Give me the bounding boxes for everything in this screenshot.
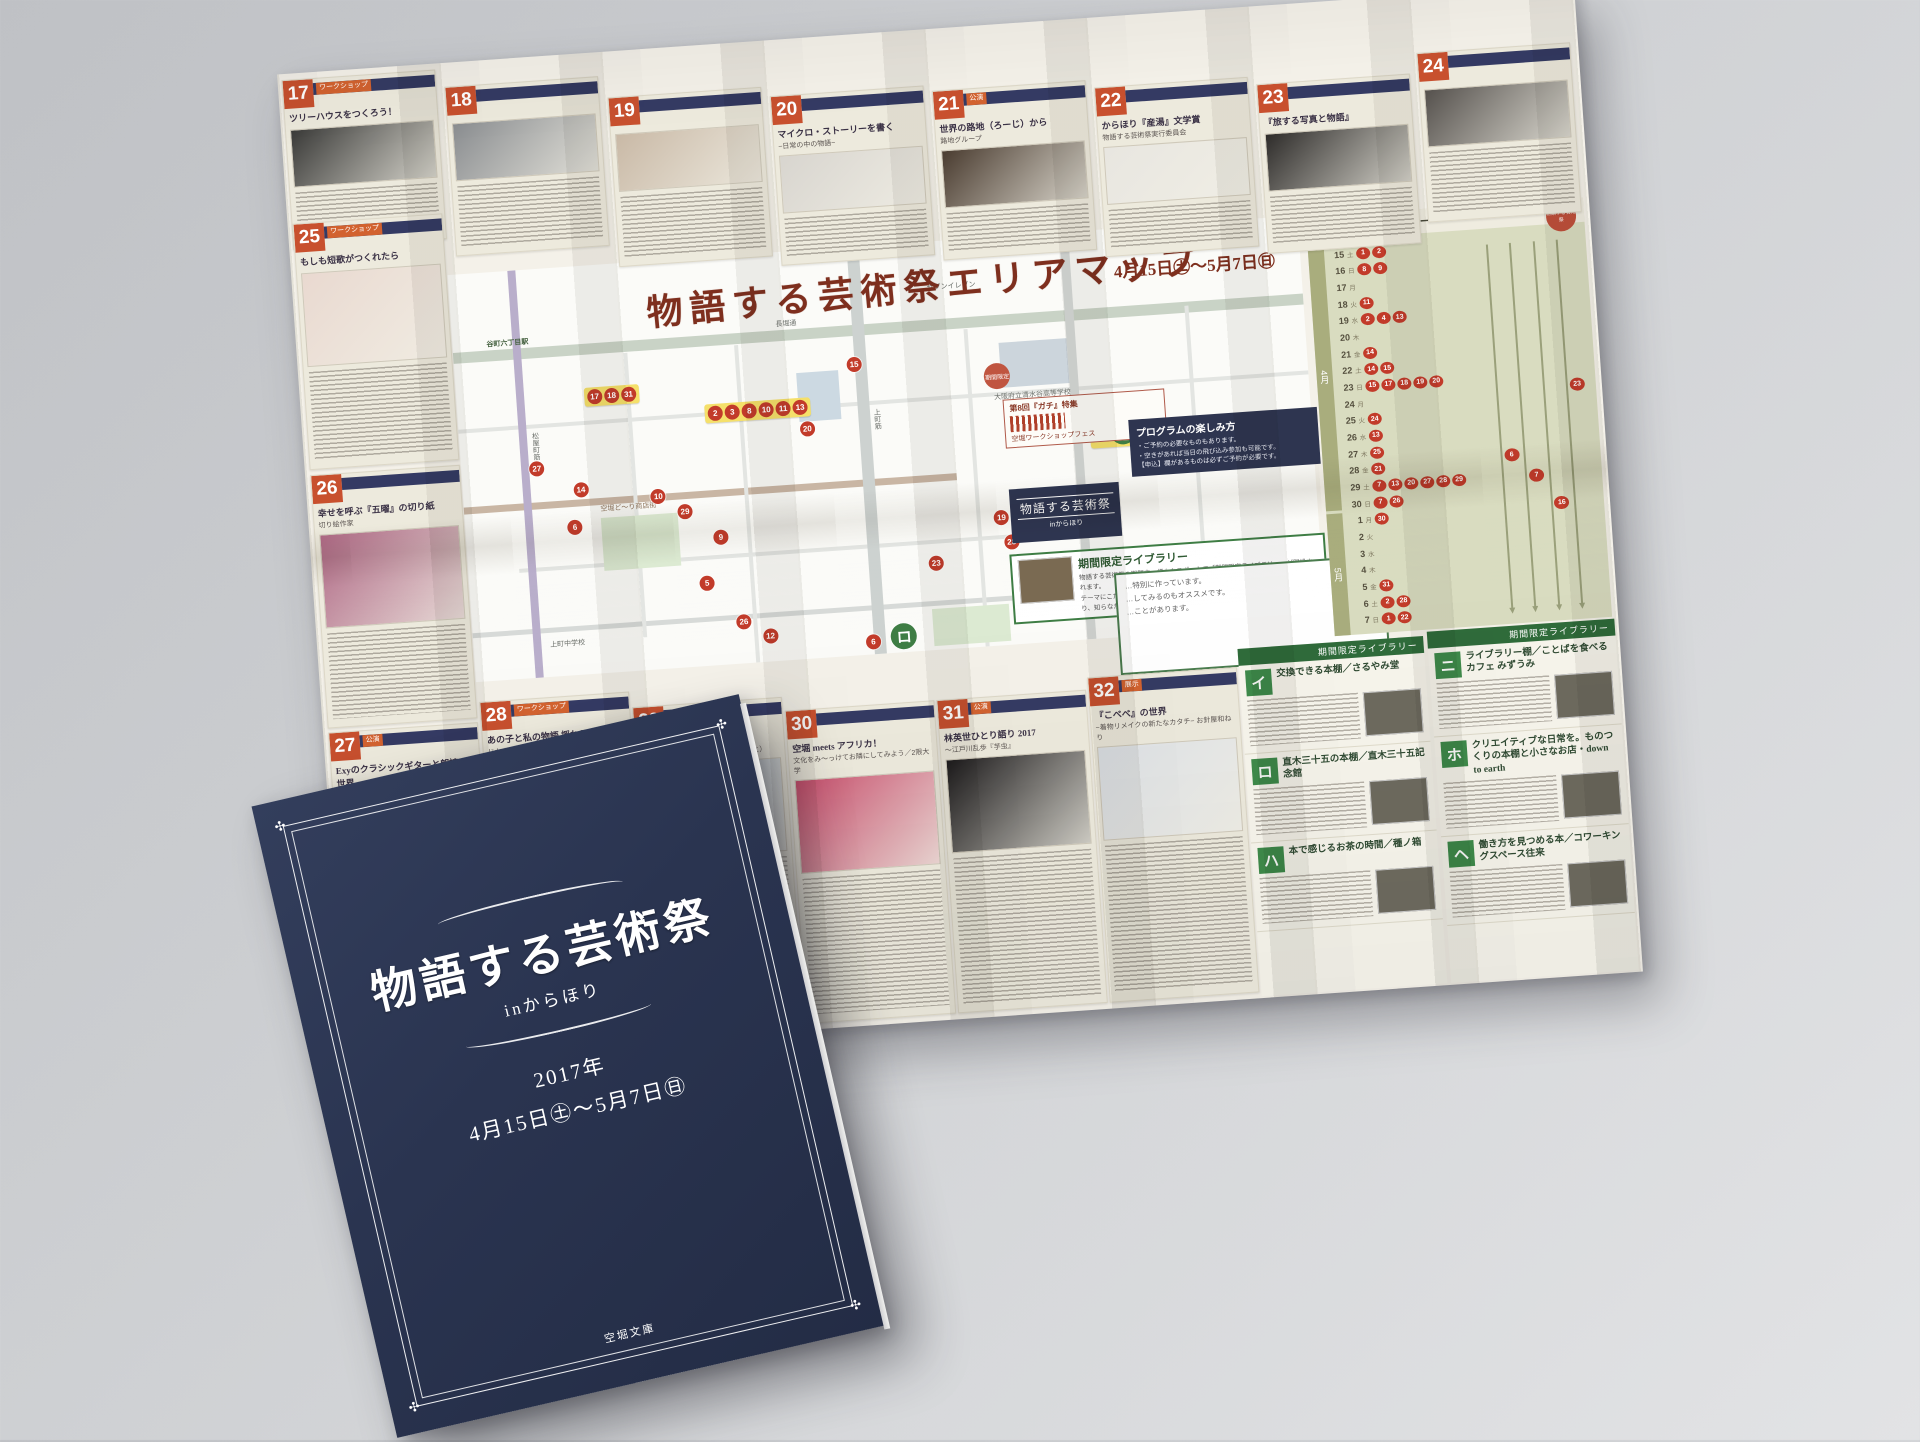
calendar-event-badge: 31 xyxy=(1379,579,1394,592)
calendar-weekday: 火 xyxy=(1347,298,1360,309)
entry-photo xyxy=(319,525,465,629)
calendar-day: 28 xyxy=(1343,465,1360,476)
entry-title-bar: 展示 xyxy=(1118,672,1237,692)
library-item-photo xyxy=(1375,866,1436,914)
library-box-photo xyxy=(1018,557,1075,605)
calendar-event-badge: 4 xyxy=(1376,312,1391,325)
calendar-event-badge: 2 xyxy=(1360,313,1375,326)
entry-photo xyxy=(452,113,600,181)
calendar-day: 23 xyxy=(1337,382,1354,393)
entry-photo xyxy=(941,140,1089,208)
map-marker-group: 238101113 xyxy=(704,397,811,423)
library-item: ニライブラリー棚／ことばを食べるカフェ みずうみ xyxy=(1428,636,1622,738)
map-number-marker: 13 xyxy=(792,399,808,415)
calendar-event-badge: 8 xyxy=(1357,263,1372,276)
calendar-event-badge: 2 xyxy=(1380,596,1395,609)
calendar-day: 5 xyxy=(1351,582,1368,593)
calendar-day: 18 xyxy=(1331,299,1348,310)
calendar-day: 17 xyxy=(1330,282,1347,293)
calendar-day: 2 xyxy=(1348,532,1365,543)
library-item-text-lines xyxy=(1253,781,1367,835)
calendar-weekday: 日 xyxy=(1369,614,1382,625)
entry-category-tag: 展示 xyxy=(1121,679,1142,692)
map-number-marker: 23 xyxy=(928,555,944,571)
corner-ornament-icon: ✣ xyxy=(273,818,287,836)
entry-card-23: 23『旅する写真と物語』 xyxy=(1256,74,1421,254)
entry-photo xyxy=(301,264,447,368)
entry-number: 31 xyxy=(937,699,969,729)
library-item: ハ本で感じるお茶の時間／種ノ箱 xyxy=(1251,831,1443,933)
calendar-event-badge: 26 xyxy=(1389,495,1404,508)
entry-category-tag: 公演 xyxy=(971,701,992,714)
library-item-photo xyxy=(1369,777,1430,825)
library-item: ヘ働き方を見つめる本／コワーキングスペース往来 xyxy=(1441,824,1635,926)
entry-card-26: 26幸せを呼ぶ『五曜』の切り紙切り絵作家 xyxy=(310,465,477,729)
calendar-event-badge: 22 xyxy=(1397,611,1412,624)
entry-text-lines xyxy=(802,869,949,1014)
map-number-marker: 9 xyxy=(713,530,729,546)
calendar-weekday: 土 xyxy=(1368,597,1381,608)
calendar-weekday: 水 xyxy=(1348,315,1361,326)
entry-title-bar: ワークショップ xyxy=(324,218,443,238)
map-number-marker: 10 xyxy=(758,402,774,418)
map-number-marker: 27 xyxy=(529,461,545,477)
calendar-event-badge: 30 xyxy=(1374,512,1389,525)
calendar-day: 15 xyxy=(1328,249,1345,260)
library-kana-badge: ハ xyxy=(1257,846,1285,874)
library-item-text-lines xyxy=(1259,870,1373,924)
map-number-marker: 31 xyxy=(621,387,637,403)
map-number-marker: 12 xyxy=(763,628,779,644)
calendar-weekday: 土 xyxy=(1360,481,1373,492)
calendar-weekday: 水 xyxy=(1357,431,1370,442)
entry-text-lines xyxy=(784,209,928,257)
calendar-event-badge: 20 xyxy=(1404,477,1419,490)
entry-title-bar xyxy=(816,705,935,725)
entry-title-bar xyxy=(1287,79,1410,99)
library-item-photo xyxy=(1554,671,1615,719)
calendar-event-badge: 17 xyxy=(1381,378,1396,391)
entry-number: 27 xyxy=(329,731,361,761)
entry-title-bar: ワークショップ xyxy=(313,75,436,95)
library-kana-badge: ホ xyxy=(1440,740,1468,768)
festival-logo-sub: inからほり xyxy=(1050,518,1084,530)
calendar-weekday: 木 xyxy=(1358,448,1371,459)
entry-number: 21 xyxy=(933,90,965,120)
calendar-day: 22 xyxy=(1336,365,1353,376)
map-number-marker: 19 xyxy=(993,510,1009,526)
calendar-weekday: 月 xyxy=(1354,398,1367,409)
label-matsuya: 松屋町筋 xyxy=(529,432,541,461)
entry-title-bar: 公演 xyxy=(963,85,1086,105)
calendar-day: 27 xyxy=(1342,449,1359,460)
entry-photo xyxy=(945,750,1091,854)
entry-category-tag: 公演 xyxy=(966,92,987,105)
calendar-event-badge: 24 xyxy=(1367,413,1382,426)
library-item-text-lines xyxy=(1443,775,1559,829)
library-column-2: 期間限定ライブラリーニライブラリー棚／ことばを食べるカフェ みずうみホクリエイテ… xyxy=(1427,619,1639,983)
calendar-weekday: 金 xyxy=(1351,348,1364,359)
entry-category-tag: ワークショップ xyxy=(316,79,372,95)
entry-number: 26 xyxy=(311,474,343,504)
entry-card-21: 21公演世界の路地（ろーじ）から路地グループ xyxy=(932,80,1097,260)
entry-text-lines xyxy=(953,849,1101,1004)
calendar-event-badge: 7 xyxy=(1372,479,1387,492)
map-number-marker: 8 xyxy=(741,403,757,419)
map-number-marker: 20 xyxy=(799,421,815,437)
entry-title-bar: 公演 xyxy=(968,695,1087,715)
library-item-body xyxy=(1443,771,1622,829)
map-number-marker: 2 xyxy=(707,405,723,421)
map-number-marker: 17 xyxy=(587,389,603,405)
calendar-event-badge: 27 xyxy=(1420,476,1435,489)
entry-text-lines xyxy=(1270,187,1415,245)
entry-title-bar xyxy=(639,92,762,112)
calendar-day: 6 xyxy=(1352,598,1369,609)
entry-photo xyxy=(779,146,927,214)
entry-number: 19 xyxy=(609,96,641,126)
entry-title-bar xyxy=(1125,82,1248,102)
entry-text-lines xyxy=(1109,200,1253,248)
entry-text-lines xyxy=(309,362,453,460)
calendar-day: 24 xyxy=(1338,399,1355,410)
corner-ornament-icon: ✣ xyxy=(715,716,729,734)
entry-photo xyxy=(290,120,438,188)
entry-card-18: 18 xyxy=(444,76,609,256)
map-number-marker: 6 xyxy=(567,519,583,535)
entry-card-31: 31公演林英世ひとり語り 2017〜江戸川乱歩『芋虫』 xyxy=(936,690,1108,1014)
school-block xyxy=(999,338,1070,388)
label-junior-high: 上町中学校 xyxy=(550,638,586,650)
park-block-2 xyxy=(932,604,1011,646)
map-kana-marker: ロ xyxy=(890,623,918,651)
calendar-day: 7 xyxy=(1353,615,1370,626)
library-item-photo xyxy=(1363,688,1424,736)
entry-number: 28 xyxy=(480,701,512,731)
map-number-marker: 14 xyxy=(573,482,589,498)
entry-number: 25 xyxy=(294,223,326,253)
library-item-body xyxy=(1247,688,1424,746)
library-kana-badge: ヘ xyxy=(1447,840,1475,868)
library-item: ホクリエイティブな日常を。ものつくりの本棚と小さなお店・down to eart… xyxy=(1434,724,1629,837)
map-number-marker: 6 xyxy=(865,633,881,649)
library-item-body xyxy=(1436,671,1615,729)
calendar-day: 25 xyxy=(1339,415,1356,426)
street-karahori-shopping xyxy=(464,473,957,514)
festival-logo-box: 物語する芸術祭 inからほり xyxy=(1009,482,1122,544)
calendar-day: 19 xyxy=(1333,316,1350,327)
library-item-title: クリエイティブな日常を。ものつくりの本棚と小さなお店・down to earth xyxy=(1471,730,1618,777)
calendar-weekday: 土 xyxy=(1344,248,1357,259)
library-item-title: ライブラリー棚／ことばを食べるカフェ みずうみ xyxy=(1465,641,1611,676)
entry-text-lines xyxy=(620,187,766,258)
entry-photo xyxy=(1103,137,1251,205)
calendar-day: 1 xyxy=(1346,515,1363,526)
calendar-day: 20 xyxy=(1334,332,1351,343)
library-column-1: 期間限定ライブラリーイ交換できる本棚／さるやみ堂ロ直木三十五の本棚／直木三十五記… xyxy=(1237,636,1447,996)
library-item-body xyxy=(1259,866,1436,924)
calendar-event-badge: 7 xyxy=(1373,496,1388,509)
calendar-event-badge: 21 xyxy=(1371,462,1386,475)
library-kana-badge: イ xyxy=(1245,669,1273,697)
entry-card-30: 30空堀 meets アフリカ！文化をみ〜っけてお隣にしてみよう／2限大学 xyxy=(785,700,957,1024)
calendar-weekday: 木 xyxy=(1350,331,1363,342)
entry-number: 17 xyxy=(283,79,315,109)
workshop-fes-logo xyxy=(1010,413,1066,433)
entry-cards: 17ワークショップツリーハウスをつくろう！181920マイクロ・ストーリーを書く… xyxy=(277,0,1574,75)
map-number-marker: 3 xyxy=(724,404,740,420)
calendar-weekday: 日 xyxy=(1361,498,1374,509)
calendar-event-badge: 9 xyxy=(1373,262,1388,275)
entry-photo xyxy=(615,124,763,192)
label-uemachi: 上町筋 xyxy=(871,408,882,430)
park-block xyxy=(601,513,681,571)
map-number-marker: 29 xyxy=(677,503,693,519)
calendar-weekday: 月 xyxy=(1362,514,1375,525)
calendar-weekday: 日 xyxy=(1353,381,1366,392)
entry-title-bar: 公演 xyxy=(359,727,478,747)
festival-logo-title: 物語する芸術祭 xyxy=(1016,493,1114,521)
calendar-event-badge: 19 xyxy=(1413,376,1428,389)
calendar-weekday: 金 xyxy=(1367,581,1380,592)
calendar-event-badge: 25 xyxy=(1370,446,1385,459)
calendar-day: 26 xyxy=(1341,432,1358,443)
entry-number: 30 xyxy=(786,710,818,740)
calendar-weekday: 火 xyxy=(1364,531,1377,542)
entry-card-19: 19 xyxy=(607,87,772,267)
entry-title-bar xyxy=(801,91,924,111)
library-item-title: 交換できる本棚／さるやみ堂 xyxy=(1276,660,1400,681)
calendar-event-badge: 13 xyxy=(1392,311,1407,324)
entry-title-bar xyxy=(476,81,599,101)
map-number-marker: 18 xyxy=(604,388,620,404)
calendar-weekday: 月 xyxy=(1346,281,1359,292)
calendar-event-badge: 28 xyxy=(1436,475,1451,488)
calendar-weekday: 水 xyxy=(1365,548,1378,559)
calendar-day: 3 xyxy=(1349,548,1366,559)
calendar-day: 30 xyxy=(1345,499,1362,510)
entry-photo xyxy=(1097,737,1243,841)
calendar-day: 21 xyxy=(1335,349,1352,360)
calendar-rows: 15土1216日8917月18火1119水241320木21金1422土1415… xyxy=(1328,230,1606,629)
map-number-marker: 26 xyxy=(736,614,752,630)
entry-card-22: 22からほり『産湯』文学賞物語する芸術祭実行委員会 xyxy=(1094,77,1259,257)
calendar-event-badge: 15 xyxy=(1365,379,1380,392)
calendar-weekday: 日 xyxy=(1345,265,1358,276)
calendar-weekday: 木 xyxy=(1366,564,1379,575)
calendar-event-badge: 14 xyxy=(1363,346,1378,359)
entry-number: 22 xyxy=(1095,86,1127,116)
calendar-event-badge: 13 xyxy=(1369,429,1384,442)
calendar-event-badge: 15 xyxy=(1380,362,1395,375)
entry-text-lines xyxy=(1105,836,1253,993)
library-item-text-lines xyxy=(1450,864,1566,918)
library-item: ロ直木三十五の本棚／直木三十五記念館 xyxy=(1245,742,1437,844)
entry-card-32: 32展示『こべべ』の世界−着物リメイクの新たなカタチ− お針屋和ねり xyxy=(1087,667,1259,1003)
calendar-event-badge: 14 xyxy=(1364,363,1379,376)
map-number-marker: 5 xyxy=(699,576,715,592)
library-kana-badge: ニ xyxy=(1434,651,1462,679)
entry-title-bar xyxy=(1448,47,1571,67)
entry-title-bar: ワークショップ xyxy=(511,697,630,717)
photo-scene: { "sheet": { "title": "物語する芸術祭エリアマップ", "… xyxy=(0,0,1920,1440)
entry-category-tag: ワークショップ xyxy=(514,701,570,717)
map-number-marker: 10 xyxy=(650,489,666,505)
calendar-weekday: 土 xyxy=(1352,365,1365,376)
entry-number: 18 xyxy=(445,86,477,116)
entry-photo xyxy=(795,770,941,874)
calendar-event-badge: 29 xyxy=(1452,474,1467,487)
library-kana-badge: ロ xyxy=(1251,757,1279,785)
entry-text-lines xyxy=(946,203,1090,251)
library-item-title: 本で感じるお茶の時間／種ノ箱 xyxy=(1288,837,1422,859)
entry-card-25: 25ワークショップもしも短歌がつくれたら xyxy=(293,213,460,470)
calendar-event-badge: 11 xyxy=(1359,296,1374,309)
calendar-weekday: 金 xyxy=(1359,464,1372,475)
entry-text-lines xyxy=(457,176,603,247)
program-calendar: プログラムカレンダー 物語する芸術祭 4月 5月 15土1216日8917月18… xyxy=(1306,198,1613,636)
calendar-event-badge: 1 xyxy=(1356,246,1371,259)
entry-number: 23 xyxy=(1257,83,1289,113)
library-item-text-lines xyxy=(1247,693,1361,747)
calendar-day: 4 xyxy=(1350,565,1367,576)
entry-text-lines xyxy=(327,624,471,719)
library-item-photo xyxy=(1567,859,1628,907)
library-item: イ交換できる本棚／さるやみ堂 xyxy=(1239,653,1431,755)
map-number-marker: 11 xyxy=(775,400,791,416)
library-item-photo xyxy=(1561,771,1622,819)
library-item-title: 働き方を見つめる本／コワーキングスペース往来 xyxy=(1478,830,1624,865)
entry-category-tag: 公演 xyxy=(362,734,383,747)
calendar-event-badge: 28 xyxy=(1396,594,1411,607)
entry-card-20: 20マイクロ・ストーリーを書く−日常の中の物語− xyxy=(770,85,935,265)
library-item-text-lines xyxy=(1436,675,1552,729)
entry-number: 24 xyxy=(1417,52,1449,82)
entry-category-tag: ワークショップ xyxy=(327,223,383,239)
calendar-event-badge: 2 xyxy=(1372,245,1387,258)
corner-ornament-icon: ✣ xyxy=(849,1296,863,1314)
calendar-event-badge: 20 xyxy=(1429,375,1444,388)
calendar-day: 29 xyxy=(1344,482,1361,493)
entry-number: 20 xyxy=(771,95,803,125)
library-item-body xyxy=(1450,859,1629,917)
library-item-title: 直木三十五の本棚／直木三十五記念館 xyxy=(1282,747,1426,782)
library-item-body xyxy=(1253,777,1430,835)
entry-card-24: 24 xyxy=(1416,42,1581,222)
entry-text-lines xyxy=(1429,142,1575,213)
program-info-box: プログラムの楽しみ方 ・ご予約の必要なものもあります。 ・空きがあれば当日の飛び… xyxy=(1128,407,1321,477)
calendar-event-badge: 1 xyxy=(1381,612,1396,625)
calendar-event-badge: 18 xyxy=(1397,377,1412,390)
calendar-event-badge: 13 xyxy=(1388,478,1403,491)
entry-title-bar xyxy=(341,470,460,490)
entry-photo xyxy=(1424,80,1572,148)
entry-number: 32 xyxy=(1088,676,1120,706)
calendar-weekday: 火 xyxy=(1355,415,1368,426)
entry-photo xyxy=(1265,124,1413,192)
calendar-day: 16 xyxy=(1329,266,1346,277)
